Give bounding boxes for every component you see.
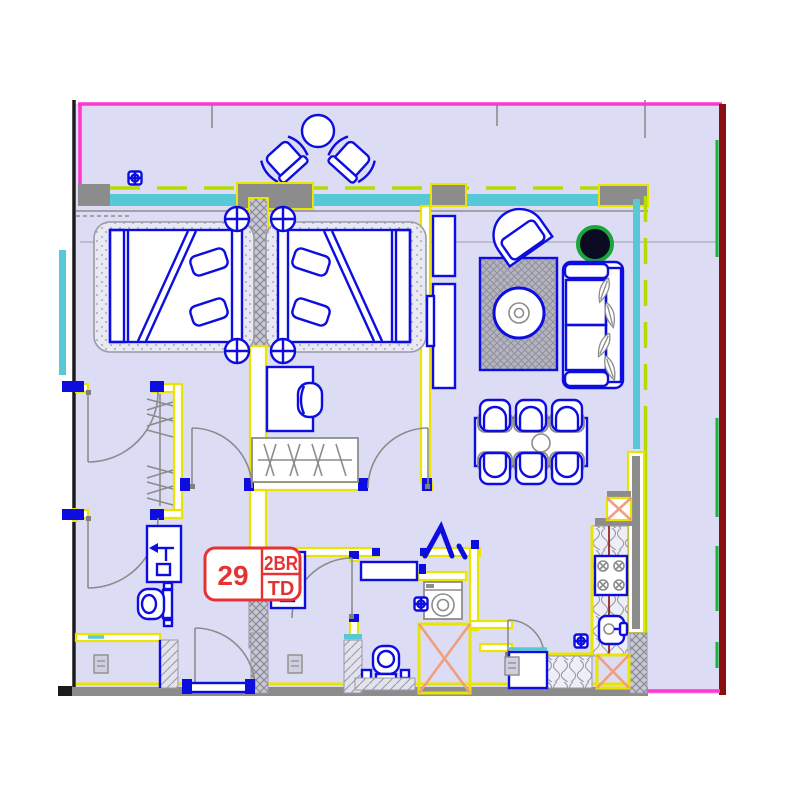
window-glazing [84,194,644,206]
tv-icon [427,296,434,346]
floor-drain-symbol [505,657,519,675]
neighbor-window [59,250,66,375]
dining-chair-icon [514,400,548,432]
balcony-table-icon [302,115,334,147]
floor-plan-canvas: 29 2BR TD [0,0,800,800]
floor-drain-symbol [288,655,302,673]
wardrobe-icon [252,438,358,482]
vanity-sink-icon [147,526,181,582]
unit-number: 29 [217,560,248,591]
unit-suffix: TD [268,578,295,600]
plant-icon [578,227,612,261]
sprinkler-icon [575,635,588,648]
entry-threshold [187,683,249,692]
floor-plan: 29 2BR TD [0,0,800,800]
structural-column [630,633,647,693]
stove-icon [595,556,627,595]
mullion-block [599,185,648,206]
dining-area [475,400,587,484]
desk-icon [267,367,322,431]
dining-chair-icon [514,452,548,484]
unit-label: 29 2BR TD [205,548,300,600]
bed-icon [110,230,242,342]
dining-chair-icon [478,452,512,484]
coffee-table-icon [494,288,544,338]
washing-machine-icon [424,582,462,619]
dining-chair-icon [478,400,512,432]
mullion-block [431,184,466,206]
floor-drain-symbol [94,655,108,673]
bed-icon [278,230,410,342]
dining-chair-icon [550,452,584,484]
unit-type: 2BR [264,553,298,575]
sofa-icon [563,262,623,388]
bathroom-2-vanity [361,562,417,580]
window-glazing [633,199,640,449]
tiled-floor [355,678,415,690]
sprinkler-icon [129,172,142,185]
sprinkler-icon [415,598,428,611]
dining-chair-icon [550,400,584,432]
kitchen-sink-icon [599,616,627,644]
